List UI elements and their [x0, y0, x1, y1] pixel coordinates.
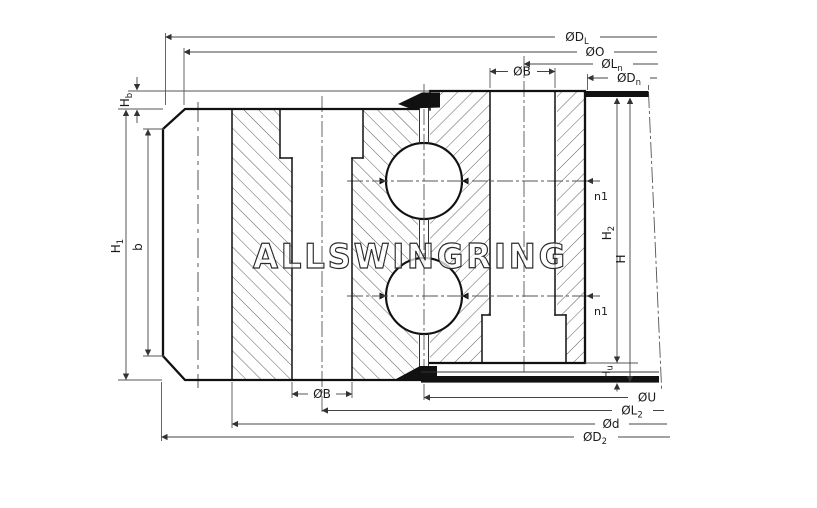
drawing-canvas: ØDL ØO ØLn ØB ØDn Hb H1 b n1 n1	[0, 0, 817, 508]
dim-label-h: H	[614, 254, 628, 263]
dim-label-b-top: ØB	[513, 65, 531, 79]
dim-label-u: ØU	[638, 391, 656, 405]
dim-label-d: Ød	[602, 417, 619, 431]
dim-label-n1-lower: n1	[594, 305, 608, 318]
dim-label-n1-upper: n1	[594, 190, 608, 203]
dim-label-b-left: b	[131, 243, 145, 251]
watermark: ALLSWINGRING	[253, 237, 568, 277]
bottom-mounting-band	[421, 376, 659, 383]
top-mounting-band	[586, 91, 649, 97]
dim-label-b-bottom: ØB	[313, 387, 331, 401]
technical-drawing: ØDL ØO ØLn ØB ØDn Hb H1 b n1 n1	[0, 0, 817, 508]
